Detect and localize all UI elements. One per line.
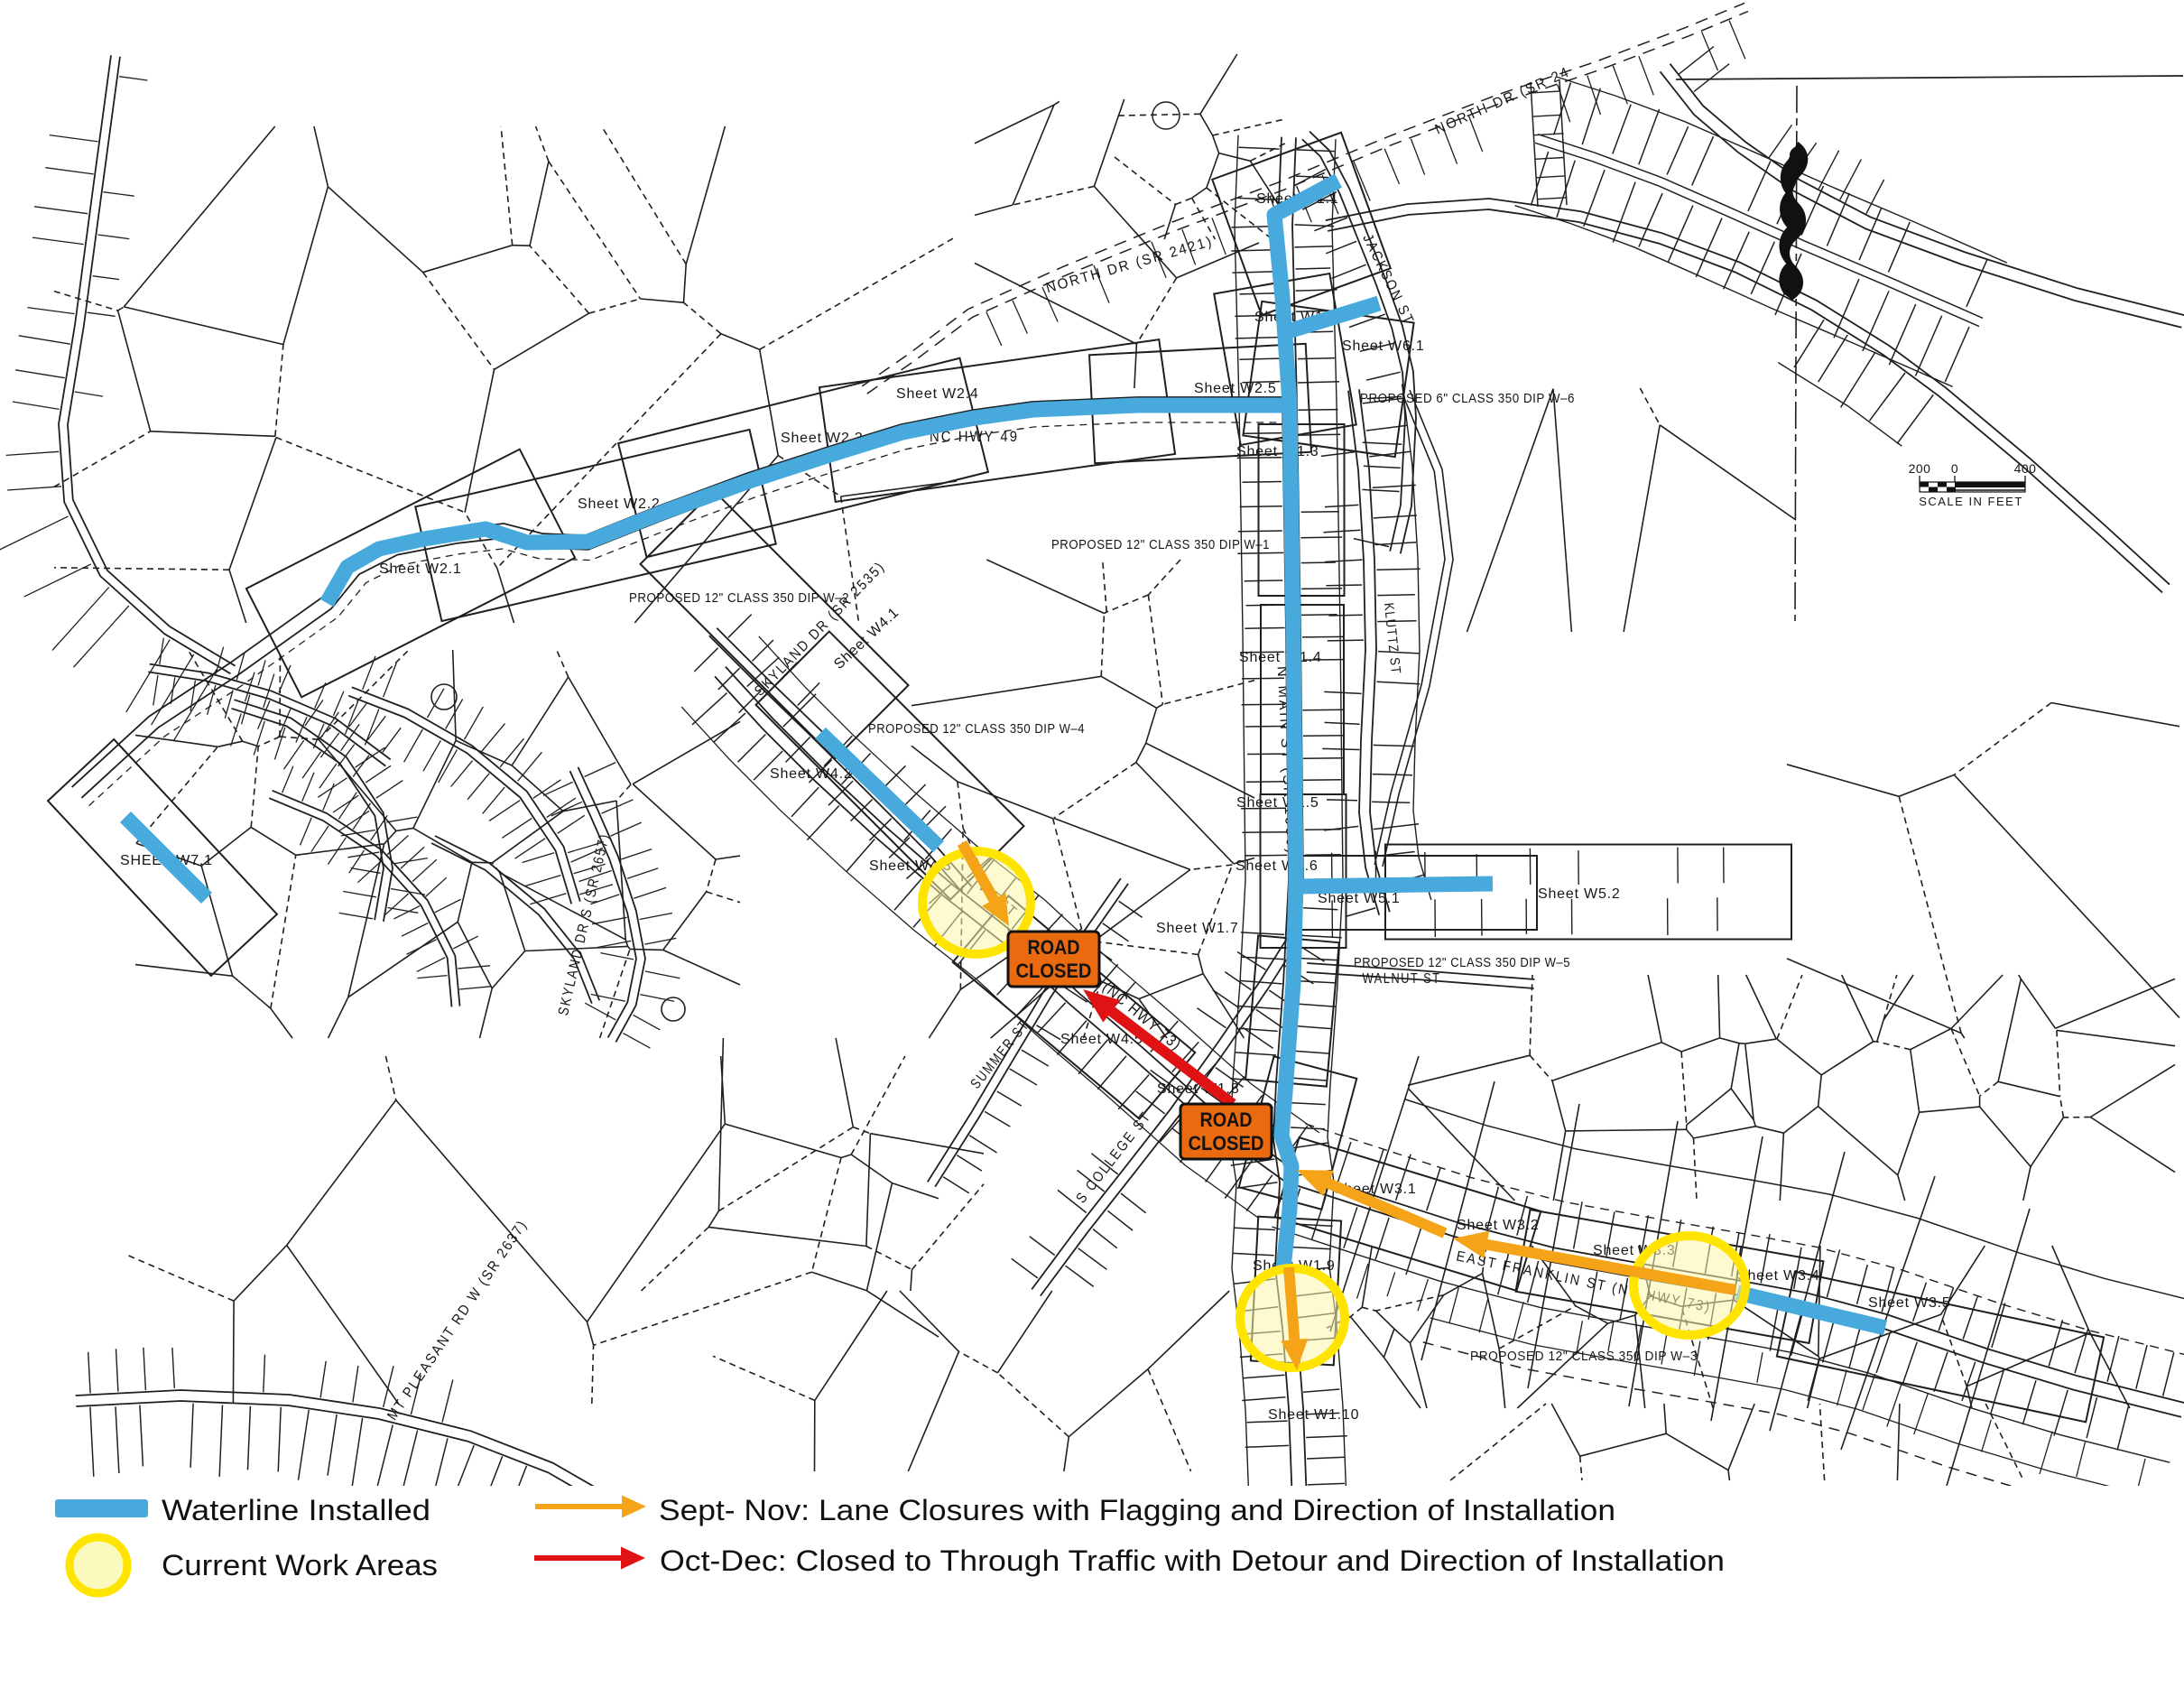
svg-text:Sheet W2.1: Sheet W2.1 xyxy=(379,561,462,577)
svg-text:Sheet W1.3: Sheet W1.3 xyxy=(1236,444,1319,459)
svg-text:ROAD: ROAD xyxy=(1028,936,1080,959)
svg-text:CLOSED: CLOSED xyxy=(1189,1132,1264,1155)
svg-text:SCALE IN FEET: SCALE IN FEET xyxy=(1919,495,2023,508)
svg-text:PROPOSED 6" CLASS 350 DIP W–6: PROPOSED 6" CLASS 350 DIP W–6 xyxy=(1360,391,1575,406)
svg-text:200: 200 xyxy=(1909,461,1931,476)
svg-text:Sheet W1.6: Sheet W1.6 xyxy=(1235,858,1319,874)
svg-text:Sheet W1.10: Sheet W1.10 xyxy=(1268,1407,1359,1423)
svg-text:Sheet W4.2: Sheet W4.2 xyxy=(770,766,853,782)
svg-text:Current Work Areas: Current Work Areas xyxy=(162,1549,438,1581)
svg-text:Sheet W2.5: Sheet W2.5 xyxy=(1194,381,1277,396)
svg-text:PROPOSED 12" CLASS 350 DIP W–2: PROPOSED 12" CLASS 350 DIP W–2 xyxy=(629,590,849,606)
svg-text:Sheet W2.4: Sheet W2.4 xyxy=(896,386,979,402)
svg-text:Oct-Dec: Closed to Through Tr: Oct-Dec: Closed to Through Traffic with … xyxy=(660,1544,1725,1577)
svg-text:WALNUT ST: WALNUT ST xyxy=(1363,971,1441,987)
svg-text:PROPOSED 12" CLASS 350 DIP W–5: PROPOSED 12" CLASS 350 DIP W–5 xyxy=(1354,955,1570,970)
svg-text:Waterline Installed: Waterline Installed xyxy=(162,1494,430,1526)
svg-text:0: 0 xyxy=(1951,461,1958,476)
svg-text:PROPOSED 12" CLASS 350 DIP W–3: PROPOSED 12" CLASS 350 DIP W–3 xyxy=(1470,1349,1698,1364)
svg-text:Sheet W5.2: Sheet W5.2 xyxy=(1538,886,1621,902)
svg-text:Sheet W3.5: Sheet W3.5 xyxy=(1868,1295,1951,1311)
svg-text:PROPOSED 12" CLASS 350 DIP W–4: PROPOSED 12" CLASS 350 DIP W–4 xyxy=(868,721,1085,737)
svg-text:Sheet W1.7: Sheet W1.7 xyxy=(1156,921,1239,936)
svg-text:Sheet W1.4: Sheet W1.4 xyxy=(1239,650,1322,665)
svg-text:CLOSED: CLOSED xyxy=(1016,960,1092,982)
svg-text:Sept- Nov: Lane Closures with: Sept- Nov: Lane Closures with Flagging a… xyxy=(659,1494,1615,1526)
svg-text:Sheet W6.1: Sheet W6.1 xyxy=(1342,339,1425,354)
svg-text:ROAD: ROAD xyxy=(1200,1108,1253,1131)
svg-text:Sheet W4.5: Sheet W4.5 xyxy=(1060,1032,1143,1047)
svg-text:PROPOSED 12" CLASS 350 DIP W–1: PROPOSED 12" CLASS 350 DIP W–1 xyxy=(1051,537,1270,552)
svg-text:Sheet W1.5: Sheet W1.5 xyxy=(1236,795,1319,811)
svg-text:Sheet W3.2: Sheet W3.2 xyxy=(1457,1218,1540,1233)
svg-text:Sheet W2.2: Sheet W2.2 xyxy=(578,496,661,512)
svg-text:400: 400 xyxy=(2014,461,2037,476)
